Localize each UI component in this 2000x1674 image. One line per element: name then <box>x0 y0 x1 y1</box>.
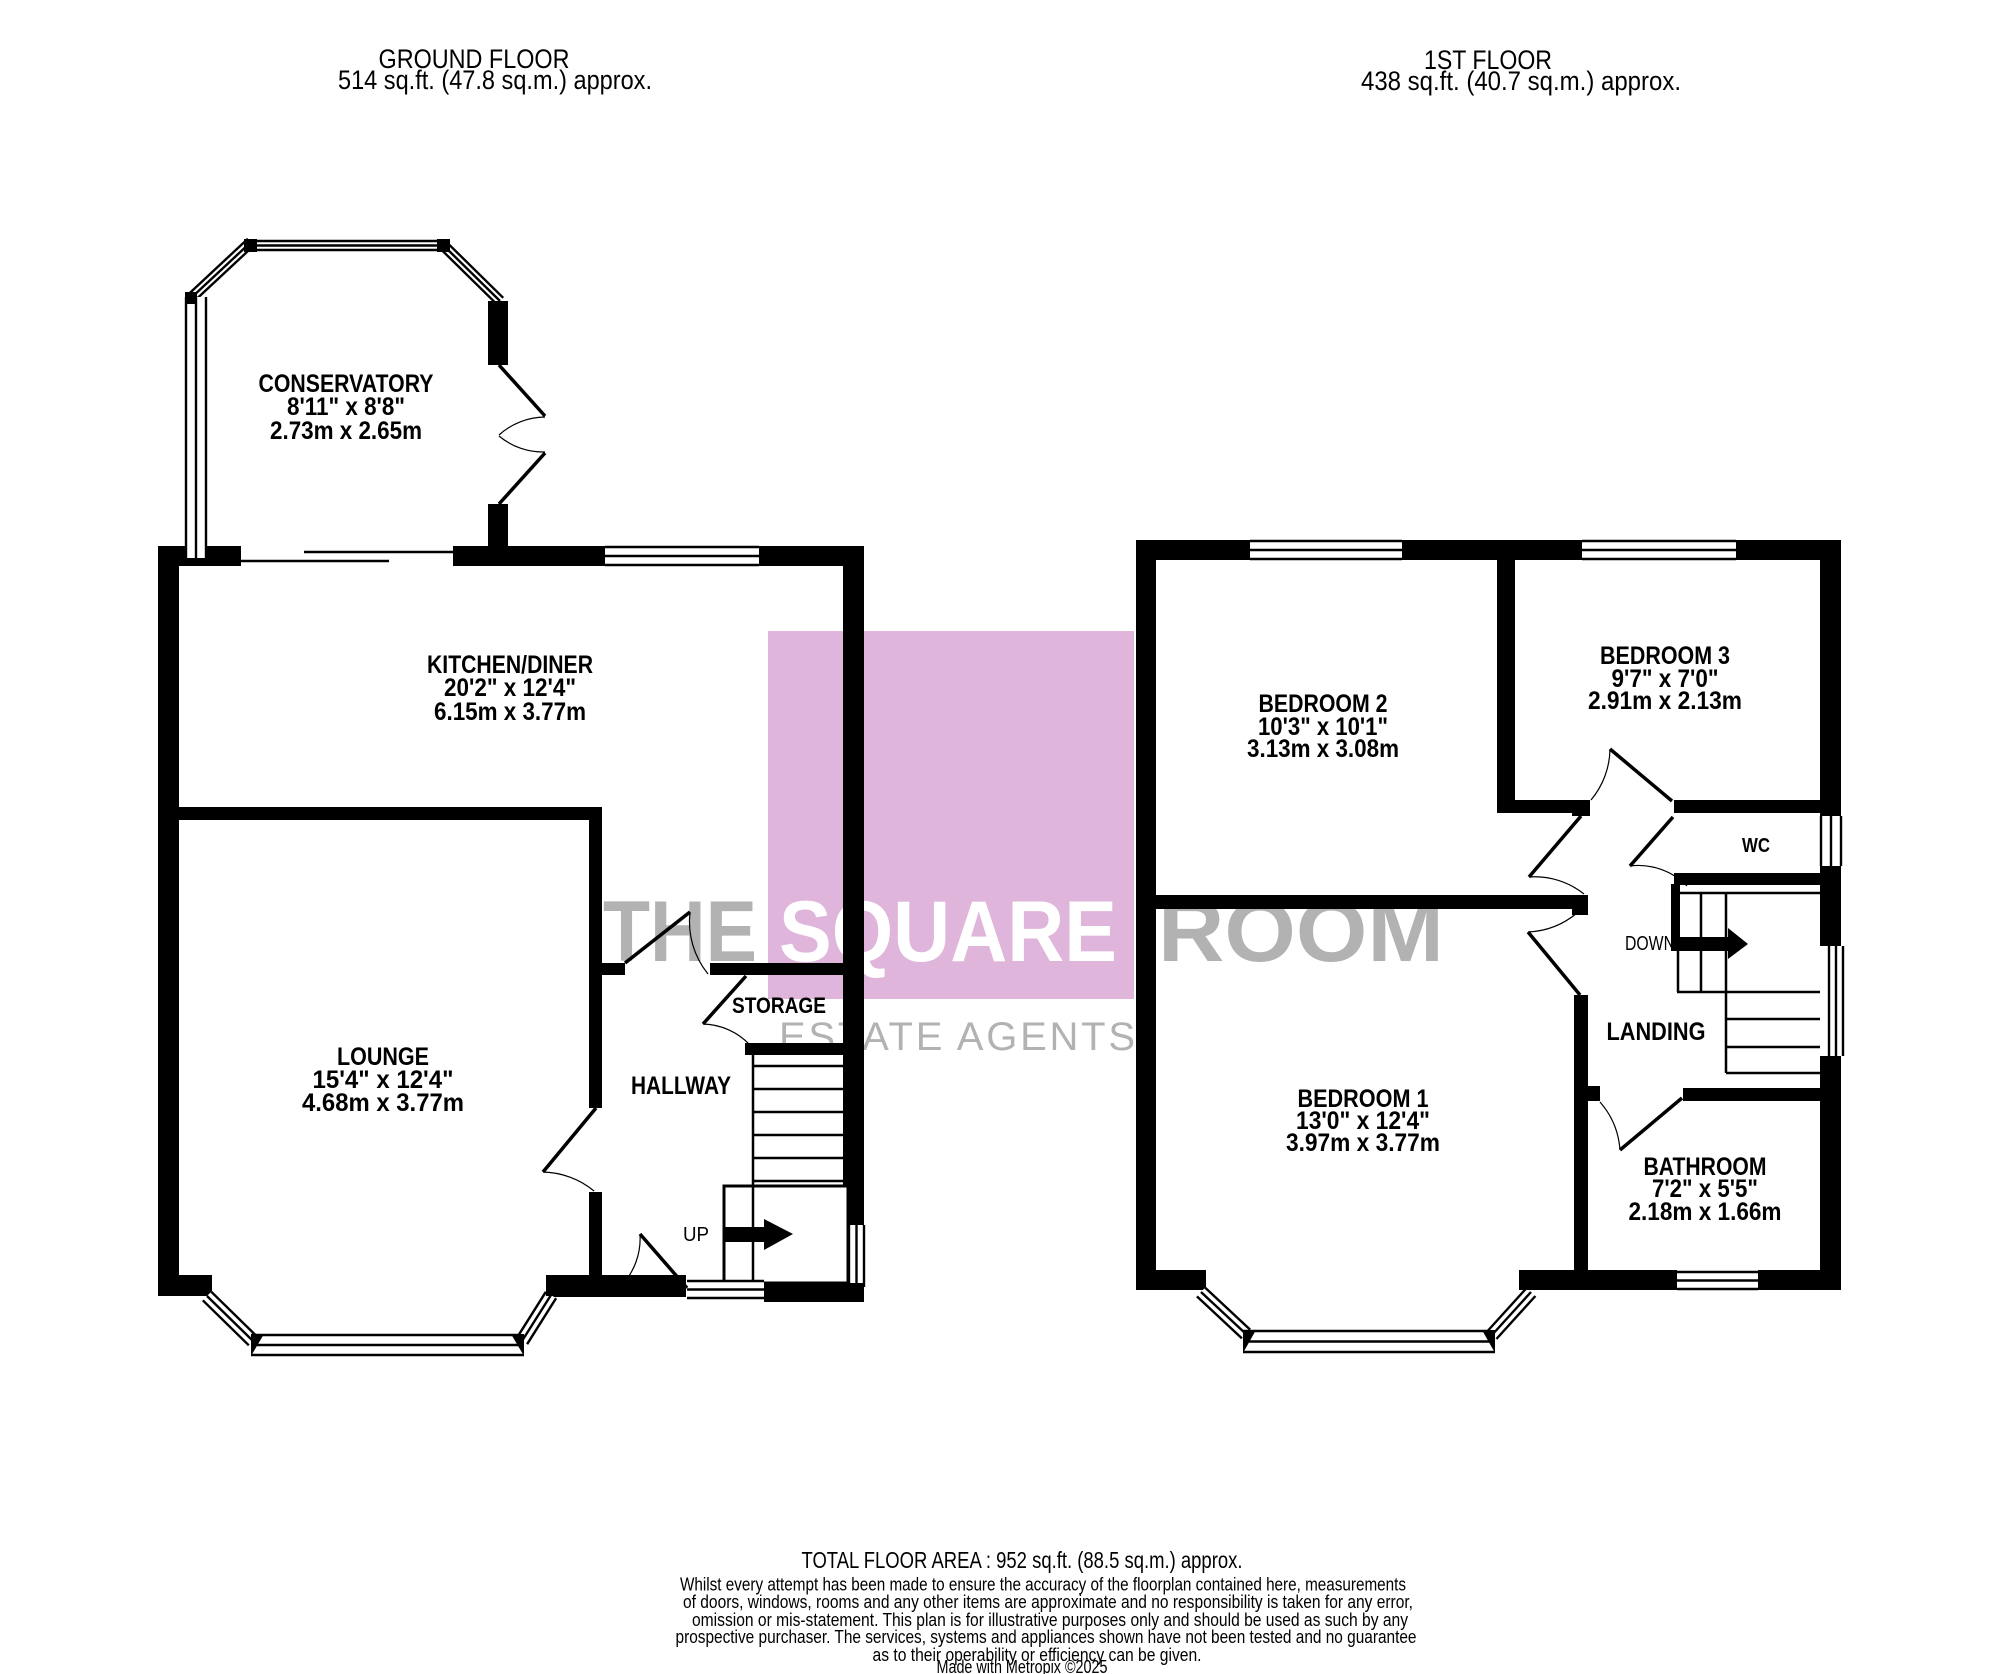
svg-text:6.15m x 3.77m: 6.15m x 3.77m <box>434 698 586 726</box>
svg-text:STORAGE: STORAGE <box>732 993 826 1018</box>
svg-text:HALLWAY: HALLWAY <box>631 1072 731 1100</box>
svg-text:2.73m x 2.65m: 2.73m x 2.65m <box>270 417 422 445</box>
svg-text:TOTAL FLOOR AREA : 952 sq.ft.: TOTAL FLOOR AREA : 952 sq.ft. (88.5 sq.m… <box>802 1547 1243 1573</box>
svg-text:prospective purchaser. The ser: prospective purchaser. The services, sys… <box>676 1627 1417 1647</box>
svg-text:UP: UP <box>683 1224 709 1246</box>
svg-text:2.18m x 1.66m: 2.18m x 1.66m <box>1629 1198 1782 1226</box>
svg-text:2.91m x 2.13m: 2.91m x 2.13m <box>1588 687 1742 715</box>
svg-text:LANDING: LANDING <box>1607 1018 1706 1046</box>
svg-text:438 sq.ft. (40.7 sq.m.) approx: 438 sq.ft. (40.7 sq.m.) approx. <box>1361 66 1681 96</box>
svg-text:4.68m x 3.77m: 4.68m x 3.77m <box>302 1089 464 1117</box>
svg-text:of doors, windows, rooms and a: of doors, windows, rooms and any other i… <box>683 1592 1413 1612</box>
svg-text:Made with Metropix ©2025: Made with Metropix ©2025 <box>937 1657 1108 1674</box>
svg-text:514 sq.ft. (47.8 sq.m.) approx: 514 sq.ft. (47.8 sq.m.) approx. <box>338 65 652 95</box>
svg-text:3.13m x 3.08m: 3.13m x 3.08m <box>1247 735 1399 763</box>
svg-text:WC: WC <box>1742 835 1770 857</box>
svg-text:3.97m x 3.77m: 3.97m x 3.77m <box>1286 1129 1440 1157</box>
svg-text:DOWN: DOWN <box>1625 933 1675 955</box>
